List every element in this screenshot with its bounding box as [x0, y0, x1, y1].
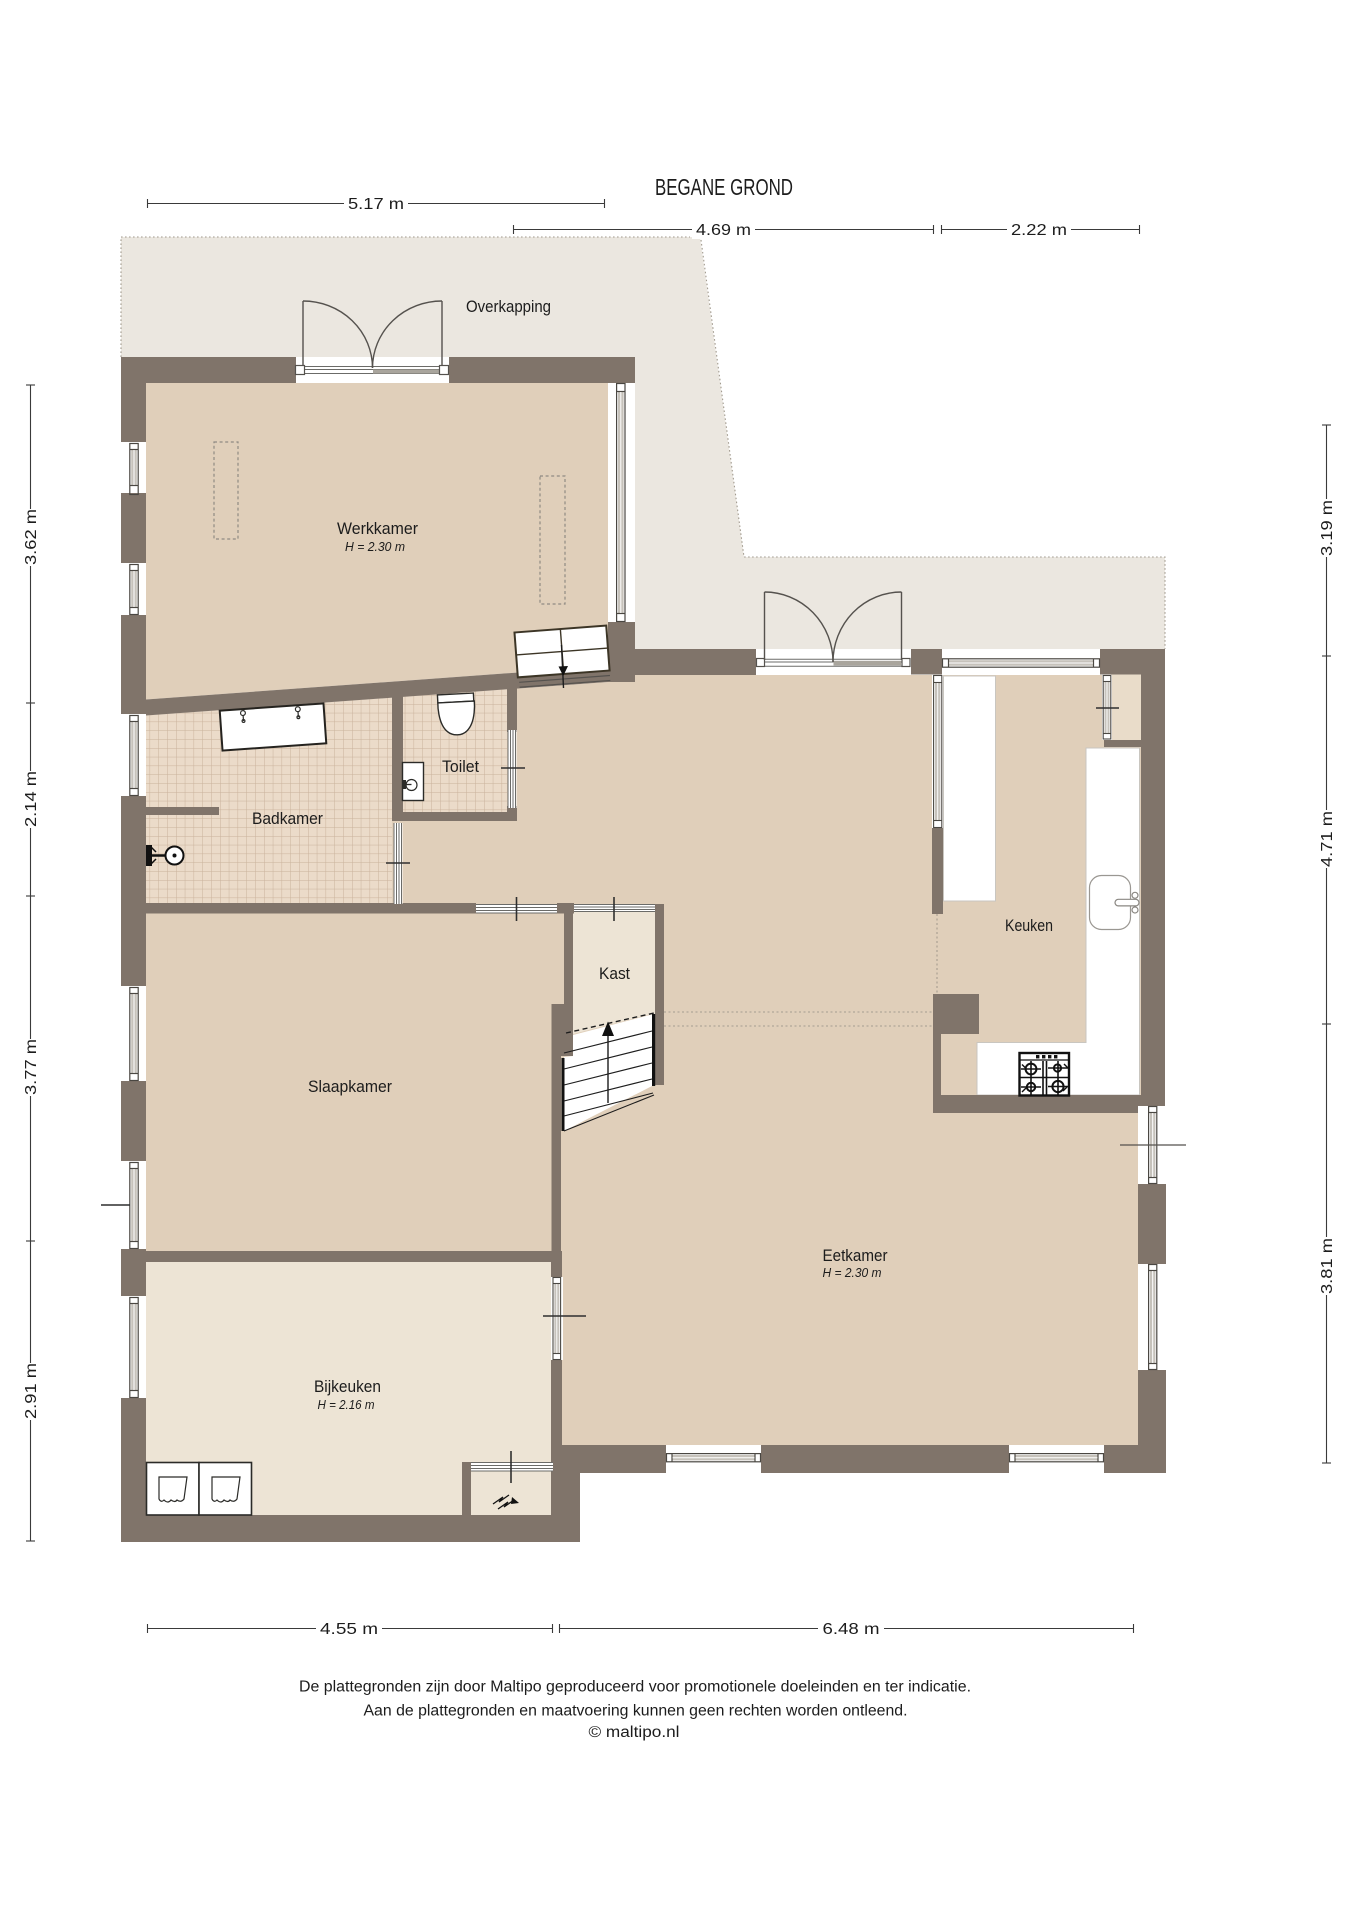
svg-text:Werkkamer: Werkkamer: [337, 520, 418, 538]
svg-text:H = 2.30 m: H = 2.30 m: [345, 539, 405, 554]
svg-text:Aan de plattegronden en maatvo: Aan de plattegronden en maatvoering kunn…: [364, 1703, 908, 1720]
svg-text:3.19 m: 3.19 m: [1319, 500, 1336, 556]
svg-text:Bijkeuken: Bijkeuken: [314, 1378, 381, 1396]
svg-text:Overkapping: Overkapping: [466, 298, 551, 316]
svg-text:4.71 m: 4.71 m: [1319, 811, 1336, 867]
svg-text:2.14 m: 2.14 m: [23, 771, 40, 827]
svg-text:Badkamer: Badkamer: [252, 810, 323, 828]
svg-text:3.77 m: 3.77 m: [23, 1039, 40, 1095]
svg-text:H = 2.16 m: H = 2.16 m: [318, 1397, 375, 1412]
svg-text:4.69 m: 4.69 m: [696, 222, 751, 239]
svg-text:Eetkamer: Eetkamer: [823, 1247, 888, 1265]
svg-text:4.55 m: 4.55 m: [320, 1621, 378, 1638]
svg-text:6.48 m: 6.48 m: [823, 1621, 880, 1638]
svg-text:De plattegronden zijn door Mal: De plattegronden zijn door Maltipo gepro…: [299, 1679, 971, 1696]
svg-text:Kast: Kast: [599, 965, 630, 983]
svg-text:Toilet: Toilet: [442, 758, 479, 776]
svg-text:3.62 m: 3.62 m: [23, 509, 40, 565]
svg-text:5.17 m: 5.17 m: [348, 196, 404, 213]
svg-text:3.81 m: 3.81 m: [1319, 1238, 1336, 1294]
svg-text:Keuken: Keuken: [1005, 917, 1053, 935]
svg-text:H = 2.30 m: H = 2.30 m: [823, 1265, 882, 1280]
svg-text:2.22 m: 2.22 m: [1011, 222, 1067, 239]
svg-text:Slaapkamer: Slaapkamer: [308, 1078, 392, 1096]
svg-text:© maltipo.nl: © maltipo.nl: [589, 1724, 680, 1741]
svg-text:2.91 m: 2.91 m: [23, 1363, 40, 1419]
svg-text:BEGANE GROND: BEGANE GROND: [655, 174, 793, 200]
